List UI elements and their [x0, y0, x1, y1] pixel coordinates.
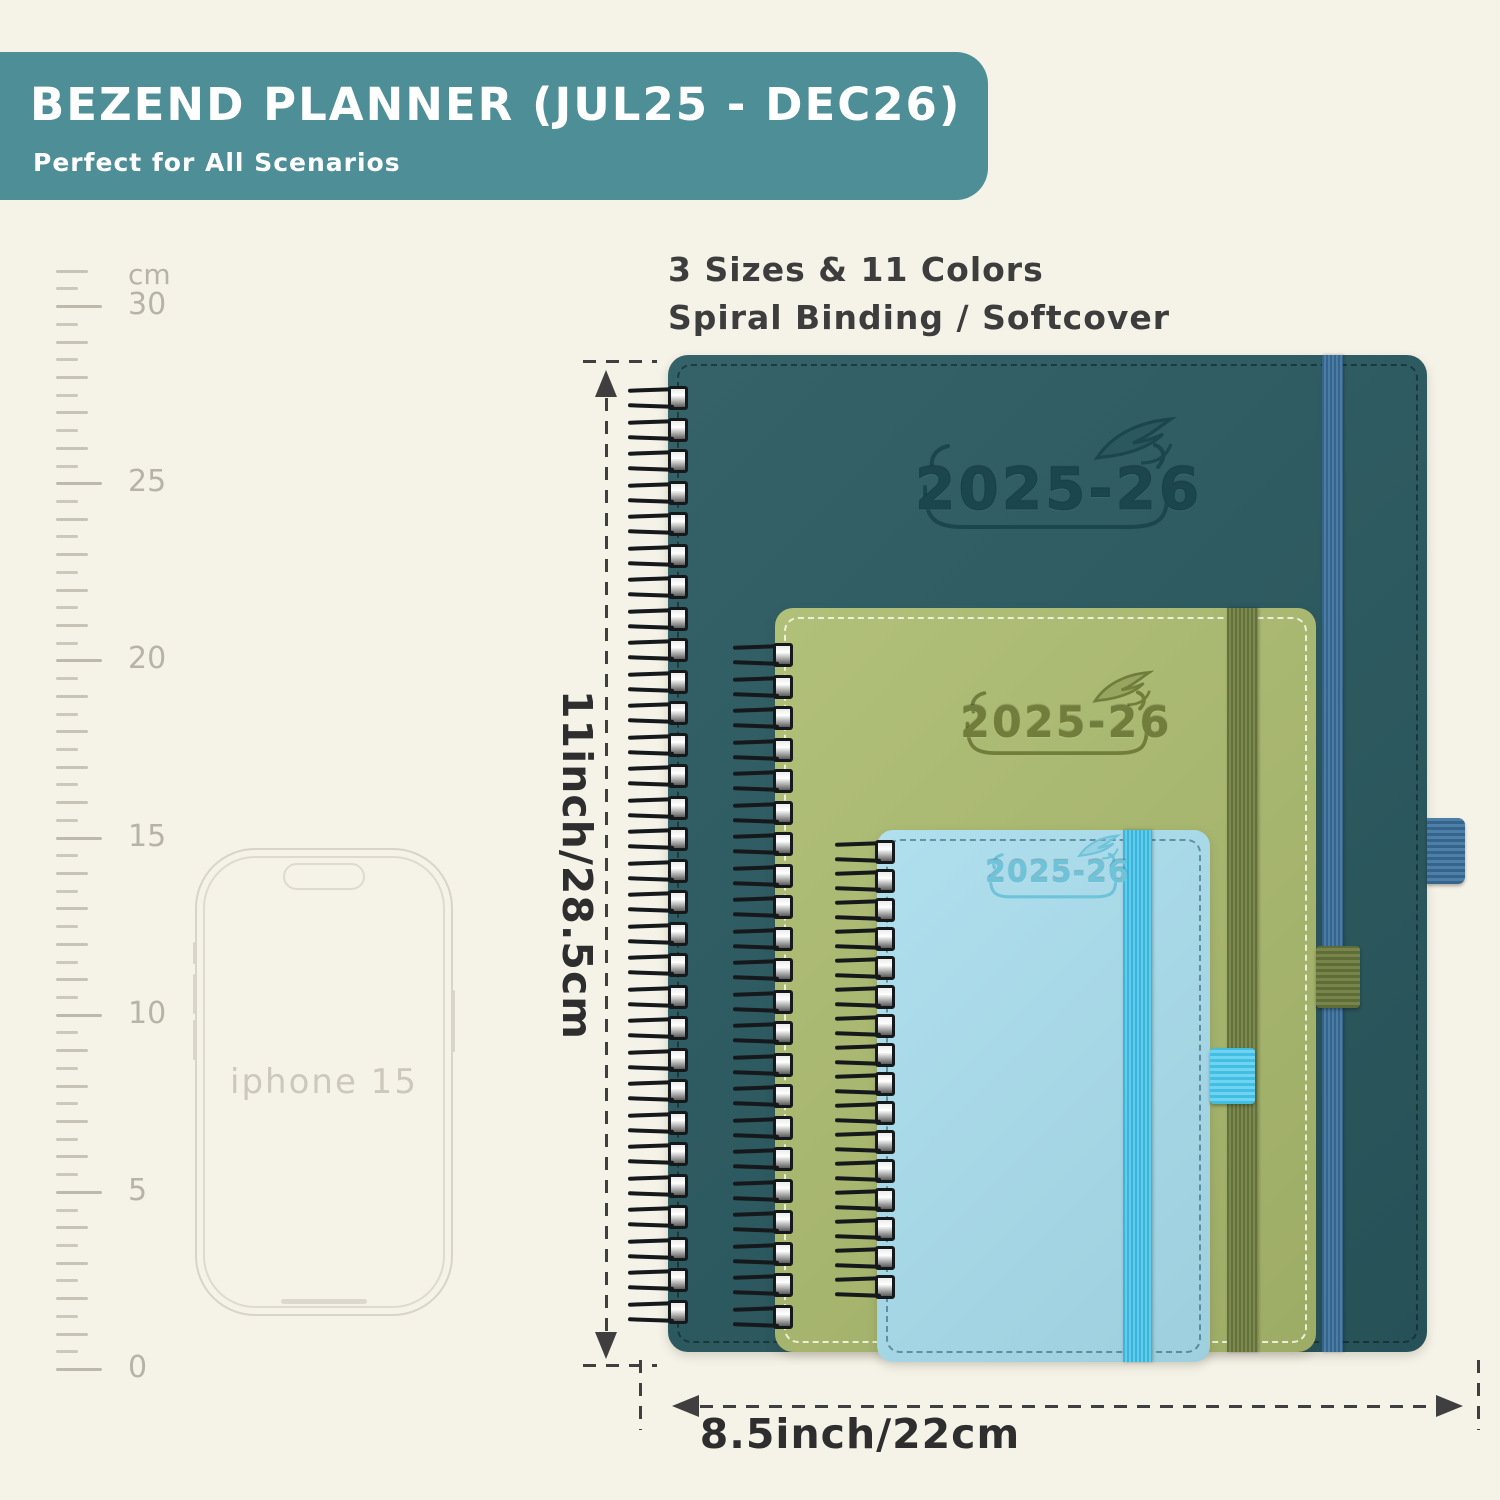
ruler-tick	[56, 606, 78, 609]
coil-clip	[875, 1014, 895, 1038]
elastic-band-medium	[1227, 608, 1258, 1352]
title-banner: BEZEND PLANNER (JUL25 - DEC26) Perfect f…	[0, 52, 988, 200]
spiral-coil-small	[835, 1161, 895, 1181]
coil-clip	[668, 638, 688, 662]
spiral-coil-large	[628, 483, 688, 503]
coil-clip	[875, 1130, 895, 1154]
spiral-coil-large	[628, 1113, 688, 1133]
coil-clip	[668, 670, 688, 694]
spiral-coil-large	[628, 735, 688, 755]
ruler-number-label: 10	[128, 999, 166, 1029]
ruler-number-label: 20	[128, 644, 166, 674]
spiral-coil-large	[628, 861, 688, 881]
spiral-coil-large	[628, 1018, 688, 1038]
ruler-tick	[56, 642, 78, 645]
spiral-coil-large	[628, 766, 688, 786]
spiral-coil-large	[628, 1239, 688, 1259]
pen-loop-large	[1427, 818, 1465, 884]
spiral-coil-medium	[733, 1212, 793, 1232]
ruler-tick	[56, 730, 88, 733]
spiral-coil-large	[628, 1081, 688, 1101]
ruler-tick	[56, 1262, 88, 1265]
coil-clip	[668, 701, 688, 725]
ruler-tick	[56, 766, 88, 769]
ruler-tick	[56, 447, 88, 450]
coil-clip	[668, 1237, 688, 1261]
ruler-tick	[56, 961, 78, 964]
spiral-coil-large	[628, 1050, 688, 1070]
ruler-tick	[56, 287, 78, 290]
coil-clip	[668, 1205, 688, 1229]
coil-clip	[773, 990, 793, 1014]
ruler-tick	[56, 323, 78, 326]
coil-clip	[668, 1174, 688, 1198]
logo-small: 2025-26	[985, 838, 1125, 900]
elastic-band-large	[1322, 355, 1343, 1352]
ruler-tick	[56, 872, 88, 875]
dim-cap-bottom	[583, 1364, 657, 1367]
spiral-coil-medium	[733, 992, 793, 1012]
coil-clip	[773, 675, 793, 699]
coil-clip	[875, 1043, 895, 1067]
logo-large: 2025-26	[915, 418, 1185, 533]
coil-clip	[668, 1016, 688, 1040]
coil-clip	[668, 449, 688, 473]
feature-line-binding: Spiral Binding / Softcover	[668, 294, 1170, 342]
spiral-coil-small	[835, 1190, 895, 1210]
ruler-tick	[56, 1102, 78, 1105]
ruler-tick	[56, 376, 88, 379]
ruler-tick	[56, 1368, 102, 1371]
spiral-coil-large	[628, 609, 688, 629]
coil-clip	[773, 1242, 793, 1266]
spiral-coil-medium	[733, 866, 793, 886]
ruler-tick	[56, 1315, 78, 1318]
coil-clip	[668, 481, 688, 505]
spiral-coil-small	[835, 900, 895, 920]
coil-clip	[773, 1116, 793, 1140]
ruler-number-label: 15	[128, 822, 166, 852]
ruler-tick	[56, 1226, 88, 1229]
ruler-tick	[56, 695, 88, 698]
spiral-coil-medium	[733, 803, 793, 823]
spiral-coil-large	[628, 892, 688, 912]
spiral-coil-large	[628, 451, 688, 471]
ruler-tick	[56, 1031, 78, 1034]
ruler-tick	[56, 1297, 88, 1300]
ruler-tick	[56, 713, 78, 716]
pen-loop-small	[1210, 1048, 1255, 1104]
power-button	[452, 990, 455, 1052]
coil-clip	[875, 1188, 895, 1212]
spiral-coil-medium	[733, 1086, 793, 1106]
coil-clip	[773, 1147, 793, 1171]
coil-clip	[773, 864, 793, 888]
dim-arrow-right	[1436, 1395, 1463, 1417]
spiral-coil-large	[628, 388, 688, 408]
coil-clip	[875, 869, 895, 893]
ruler-tick	[56, 819, 78, 822]
spiral-coil-large	[628, 640, 688, 660]
dim-cap-left	[639, 1360, 642, 1430]
ruler-tick	[56, 837, 102, 840]
product-title: BEZEND PLANNER (JUL25 - DEC26)	[30, 78, 961, 131]
spiral-coil-small	[835, 871, 895, 891]
coil-clip	[875, 1217, 895, 1241]
coil-clip	[668, 985, 688, 1009]
coil-clip	[668, 953, 688, 977]
volume-down-button	[193, 1020, 196, 1060]
ruler-tick	[56, 943, 88, 946]
coil-clip	[875, 1246, 895, 1270]
spiral-coil-small	[835, 1045, 895, 1065]
coil-clip	[773, 1273, 793, 1297]
ruler-tick	[56, 1120, 88, 1123]
coil-clip	[668, 796, 688, 820]
coil-clip	[773, 927, 793, 951]
dim-line-vertical	[605, 398, 608, 1334]
spiral-coil-large	[628, 546, 688, 566]
elastic-band-small	[1123, 830, 1152, 1362]
spiral-coil-large	[628, 514, 688, 534]
coil-clip	[668, 890, 688, 914]
stitching-small	[886, 839, 1201, 1353]
spiral-coil-medium	[733, 1149, 793, 1169]
ruler-tick	[56, 996, 78, 999]
spiral-coil-small	[835, 1277, 895, 1297]
ruler-tick	[56, 1244, 78, 1247]
volume-up-button	[193, 974, 196, 1014]
ruler-tick	[56, 411, 88, 414]
home-indicator	[281, 1299, 367, 1304]
coil-clip	[668, 575, 688, 599]
spiral-coil-large	[628, 987, 688, 1007]
coil-clip	[875, 840, 895, 864]
ruler-tick	[56, 1049, 88, 1052]
spiral-coil-medium	[733, 708, 793, 728]
ruler-tick	[56, 1155, 88, 1158]
coil-clip	[773, 801, 793, 825]
coil-clip	[773, 1021, 793, 1045]
spiral-coil-medium	[733, 1118, 793, 1138]
coil-clip	[773, 1305, 793, 1329]
ruler-tick	[56, 589, 88, 592]
coil-clip	[668, 1048, 688, 1072]
coil-clip	[668, 1300, 688, 1324]
spiral-coil-large	[628, 829, 688, 849]
ruler-tick	[56, 748, 78, 751]
ruler-tick	[56, 500, 78, 503]
year-embossed-small: 2025-26	[985, 855, 1125, 890]
dim-arrow-up	[595, 370, 617, 397]
ruler-tick	[56, 305, 102, 308]
ruler-tick	[56, 1138, 78, 1141]
spiral-coil-small	[835, 987, 895, 1007]
ruler-number-label: 25	[128, 467, 166, 497]
coil-clip	[668, 827, 688, 851]
spiral-coil-large	[628, 1270, 688, 1290]
ruler-tick	[56, 783, 78, 786]
ruler-tick	[56, 1333, 88, 1336]
product-subtitle: Perfect for All Scenarios	[33, 148, 401, 177]
spiral-coil-medium	[733, 960, 793, 980]
planner-small-cover	[877, 830, 1210, 1362]
ruler-tick	[56, 535, 78, 538]
coil-clip	[773, 1084, 793, 1108]
ruler-tick	[56, 341, 88, 344]
ruler-tick	[56, 465, 78, 468]
ruler-number-label: 30	[128, 290, 166, 320]
coil-clip	[668, 1268, 688, 1292]
pen-loop-medium	[1316, 946, 1360, 1008]
ruler-tick	[56, 571, 78, 574]
year-embossed-medium: 2025-26	[960, 698, 1160, 748]
coil-clip	[668, 764, 688, 788]
width-dimension-label: 8.5inch/22cm	[660, 1410, 1060, 1458]
spiral-coil-large	[628, 1207, 688, 1227]
spiral-coil-medium	[733, 1244, 793, 1264]
logo-medium: 2025-26	[960, 672, 1160, 758]
spiral-coil-small	[835, 1219, 895, 1239]
coil-clip	[875, 956, 895, 980]
ruler-tick	[56, 1191, 102, 1194]
feature-line-sizes-colors: 3 Sizes & 11 Colors	[668, 246, 1170, 294]
ruler-tick	[56, 801, 88, 804]
spiral-coil-large	[628, 577, 688, 597]
ruler-tick	[56, 925, 78, 928]
ruler-tick	[56, 358, 78, 361]
height-dimension-label: 11inch/28.5cm	[553, 690, 601, 1040]
coil-clip	[668, 733, 688, 757]
ruler-tick	[56, 1067, 78, 1070]
coil-clip	[875, 1072, 895, 1096]
coil-clip	[773, 832, 793, 856]
spiral-coil-small	[835, 1132, 895, 1152]
ruler-tick	[56, 978, 88, 981]
coil-clip	[773, 706, 793, 730]
dynamic-island	[283, 863, 365, 890]
spiral-coil-large	[628, 420, 688, 440]
coil-clip	[773, 1210, 793, 1234]
dim-arrow-down	[595, 1332, 617, 1359]
coil-clip	[773, 1053, 793, 1077]
ruler-tick	[56, 1209, 78, 1212]
spiral-coil-medium	[733, 1023, 793, 1043]
coil-clip	[773, 1179, 793, 1203]
ruler-tick	[56, 270, 88, 273]
year-embossed-large: 2025-26	[915, 455, 1185, 523]
coil-clip	[773, 895, 793, 919]
ruler-tick	[56, 1173, 78, 1176]
dim-cap-top	[583, 360, 657, 363]
coil-clip	[773, 769, 793, 793]
coil-clip	[773, 958, 793, 982]
spiral-coil-large	[628, 703, 688, 723]
spiral-coil-large	[628, 1144, 688, 1164]
spiral-coil-small	[835, 1016, 895, 1036]
coil-clip	[668, 607, 688, 631]
coil-clip	[668, 544, 688, 568]
spiral-coil-medium	[733, 1275, 793, 1295]
coil-clip	[875, 1159, 895, 1183]
coil-clip	[668, 512, 688, 536]
ruler-tick	[56, 624, 88, 627]
iphone-outline: iphone 15	[195, 848, 453, 1316]
ruler-tick	[56, 1350, 78, 1353]
action-button	[193, 942, 196, 964]
ruler-tick	[56, 429, 78, 432]
spiral-coil-medium	[733, 677, 793, 697]
spiral-coil-small	[835, 929, 895, 949]
coil-clip	[875, 898, 895, 922]
ruler-tick	[56, 854, 78, 857]
spiral-coil-large	[628, 798, 688, 818]
ruler-tick	[56, 482, 102, 485]
spiral-coil-small	[835, 958, 895, 978]
spiral-coil-medium	[733, 897, 793, 917]
dim-cap-right	[1477, 1360, 1480, 1430]
spiral-coil-small	[835, 1074, 895, 1094]
ruler-number-label: 0	[128, 1353, 147, 1383]
ruler-tick	[56, 1279, 78, 1282]
ruler-number-label: 5	[128, 1176, 147, 1206]
coil-clip	[668, 1079, 688, 1103]
coil-clip	[668, 1142, 688, 1166]
spiral-coil-small	[835, 1248, 895, 1268]
coil-clip	[875, 1275, 895, 1299]
ruler-tick	[56, 907, 88, 910]
spiral-coil-large	[628, 924, 688, 944]
spiral-coil-large	[628, 1176, 688, 1196]
ruler-tick	[56, 659, 102, 662]
coil-clip	[668, 386, 688, 410]
spiral-coil-medium	[733, 1055, 793, 1075]
spiral-coil-small	[835, 1103, 895, 1123]
ruler-tick	[56, 1014, 102, 1017]
coil-clip	[773, 643, 793, 667]
coil-clip	[773, 738, 793, 762]
spiral-coil-large	[628, 1302, 688, 1322]
ruler-unit-label: cm	[128, 258, 171, 291]
spiral-coil-medium	[733, 771, 793, 791]
coil-clip	[668, 859, 688, 883]
ruler-tick	[56, 890, 78, 893]
spiral-coil-large	[628, 955, 688, 975]
spiral-coil-medium	[733, 645, 793, 665]
spiral-coil-medium	[733, 1307, 793, 1327]
feature-text: 3 Sizes & 11 Colors Spiral Binding / Sof…	[668, 246, 1170, 342]
coil-clip	[875, 1101, 895, 1125]
spiral-coil-medium	[733, 834, 793, 854]
iphone-label: iphone 15	[197, 1062, 451, 1102]
ruler-tick	[56, 518, 88, 521]
coil-clip	[875, 985, 895, 1009]
ruler-tick	[56, 677, 78, 680]
coil-clip	[668, 418, 688, 442]
ruler-tick	[56, 394, 78, 397]
spiral-coil-medium	[733, 1181, 793, 1201]
ruler-tick	[56, 553, 88, 556]
spiral-coil-medium	[733, 740, 793, 760]
spiral-coil-medium	[733, 929, 793, 949]
dim-line-horizontal	[700, 1405, 1436, 1408]
spiral-coil-small	[835, 842, 895, 862]
ruler-tick	[56, 1085, 88, 1088]
coil-clip	[668, 922, 688, 946]
spiral-coil-large	[628, 672, 688, 692]
coil-clip	[668, 1111, 688, 1135]
coil-clip	[875, 927, 895, 951]
